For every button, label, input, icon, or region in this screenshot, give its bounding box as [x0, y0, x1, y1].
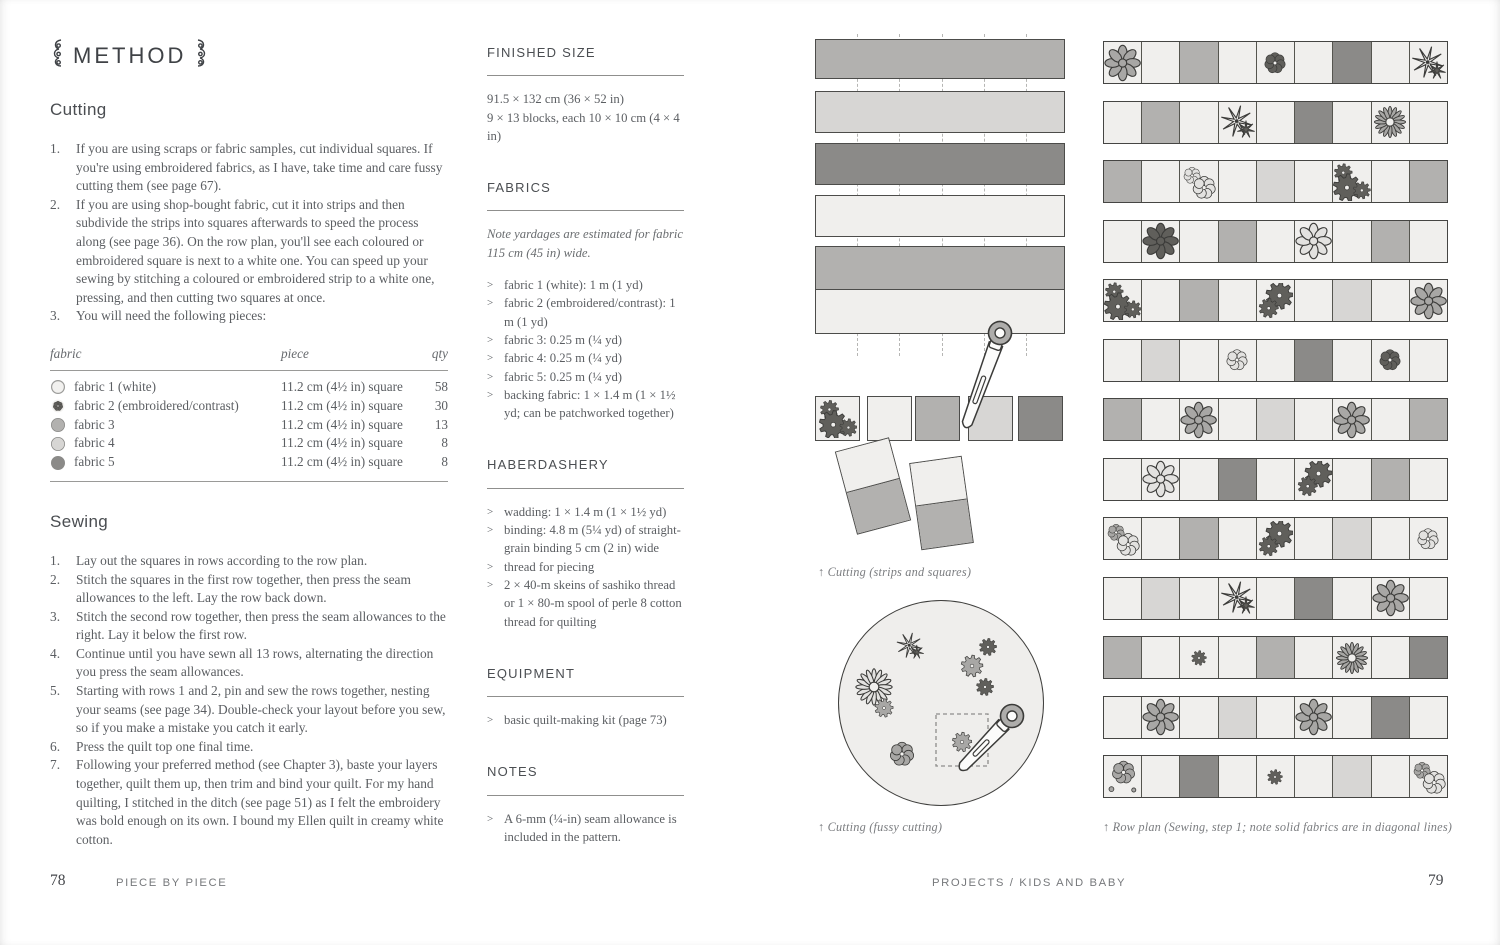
- gear-flower-icon: [1262, 764, 1288, 790]
- row-plan-cell-white: [1332, 340, 1370, 381]
- fabric-strip: [815, 39, 1065, 79]
- row-plan-row: [1103, 577, 1448, 620]
- step-text: If you are using shop-bought fabric, cut…: [76, 197, 434, 305]
- step-text: If you are using scraps or fabric sample…: [76, 141, 442, 193]
- row-plan-cell-white: [1256, 697, 1294, 738]
- row-plan-cell-solid: [1218, 459, 1256, 500]
- row-plan-cell-solid: [1141, 340, 1179, 381]
- star-flower-icon: [1410, 42, 1447, 83]
- step-item: 7.Following your preferred method (see C…: [50, 756, 450, 849]
- row-plan-cell-solid: [1294, 578, 1332, 619]
- info-section: NOTES>A 6-mm (¼-in) seam allowance is in…: [487, 763, 684, 846]
- page-title: METHOD: [50, 38, 450, 74]
- cut-square: [815, 396, 860, 441]
- cut-square: [1018, 396, 1063, 441]
- step-text: Starting with rows 1 and 2, pin and sew …: [76, 683, 445, 735]
- row-plan-row: [1103, 696, 1448, 739]
- row-plan-cell-white: [1371, 42, 1409, 83]
- bullet-item: >2 × 40-m skeins of sashiko thread or 1 …: [487, 576, 684, 631]
- info-section-title: NOTES: [487, 763, 684, 781]
- row-plan-cell-white: [1218, 161, 1256, 202]
- two-square-unit: [909, 456, 974, 551]
- row-plan-cell-embroidered: [1332, 161, 1370, 202]
- row-plan-cell-white: [1104, 459, 1141, 500]
- info-section-title: EQUIPMENT: [487, 665, 684, 683]
- book-spread: METHOD Cutting 1.If you are using scraps…: [0, 0, 1500, 945]
- quantity: 8: [416, 434, 448, 453]
- row-plan-cell-solid: [1179, 518, 1217, 559]
- fabric-table-row: fabric 511.2 cm (4½ in) square8: [50, 453, 448, 472]
- step-item: 5.Starting with rows 1 and 2, pin and se…: [50, 682, 450, 738]
- row-plan-cell-solid: [1104, 161, 1141, 202]
- bullet-icon: >: [487, 810, 493, 828]
- row-plan-cell-solid: [1256, 637, 1294, 678]
- info-line: 91.5 × 132 cm (36 × 52 in): [487, 90, 684, 108]
- daisy-flower-icon: [1333, 400, 1370, 440]
- row-plan-cell-embroidered: [1256, 280, 1294, 321]
- row-plan-cell-solid: [1104, 399, 1141, 440]
- row-plan-cell-embroidered: [1141, 697, 1179, 738]
- daisy-flower-icon: [1142, 459, 1179, 499]
- row-plan-row: [1103, 160, 1448, 203]
- row-plan-cell-solid: [1409, 637, 1447, 678]
- row-plan-cell-white: [1256, 340, 1294, 381]
- row-plan-cell-embroidered: [1218, 102, 1256, 143]
- step-item: 3.Stitch the second row together, then p…: [50, 608, 450, 645]
- row-plan-cell-embroidered: [1141, 221, 1179, 262]
- row-plan-cell-white: [1141, 637, 1179, 678]
- row-plan-cell-white: [1104, 697, 1141, 738]
- row-plan-cell-solid: [1218, 221, 1256, 262]
- fussy-overlay: [836, 598, 1048, 810]
- step-number: 6.: [50, 738, 60, 757]
- swirl-flower-icon: [1223, 346, 1251, 374]
- row-plan-cell-white: [1179, 697, 1217, 738]
- step-item: 1.If you are using scraps or fabric samp…: [50, 140, 450, 196]
- row-plan-cell-white: [1294, 756, 1332, 797]
- row-plan-caption: ↑ Row plan (Sewing, step 1; note solid f…: [1103, 820, 1452, 835]
- row-plan-cell-embroidered: [1218, 340, 1256, 381]
- row-plan-cell-white: [1179, 102, 1217, 143]
- row-plan-cell-white: [1371, 637, 1409, 678]
- row-plan-row: [1103, 279, 1448, 322]
- row-plan-cell-white: [1141, 518, 1179, 559]
- row-plan-cell-white: [1179, 578, 1217, 619]
- fabric-table-row: fabric 311.2 cm (4½ in) square13: [50, 416, 448, 435]
- row-plan-cell-white: [1371, 280, 1409, 321]
- row-plan-figure: [1103, 41, 1448, 803]
- row-plan-cell-white: [1104, 221, 1141, 262]
- row-plan-cell-solid: [1371, 697, 1409, 738]
- gears3-flower-icon: [819, 400, 857, 438]
- footer-section-title: PROJECTS / KIDS AND BABY: [932, 877, 1126, 889]
- row-plan-cell-white: [1371, 756, 1409, 797]
- sunburst-flower-icon: [1334, 640, 1370, 676]
- row-plan-cell-white: [1141, 280, 1179, 321]
- row-plan-cell-embroidered: [1104, 42, 1141, 83]
- daisy-flower-icon: [1295, 221, 1332, 261]
- gears2-flower-icon: [1296, 461, 1332, 497]
- step-number: 7.: [50, 756, 60, 775]
- swirldots-flower-icon: [1104, 757, 1141, 797]
- bullet-icon: >: [487, 503, 493, 521]
- piece-size: 11.2 cm (4½ in) square: [281, 416, 416, 435]
- row-plan-cell-white: [1294, 280, 1332, 321]
- row-plan-cell-white: [1371, 161, 1409, 202]
- row-plan-cell-solid: [1409, 161, 1447, 202]
- cutting-heading: Cutting: [50, 100, 450, 120]
- section-rule: [487, 210, 684, 211]
- row-plan-cell-white: [1218, 42, 1256, 83]
- piece-size: 11.2 cm (4½ in) square: [281, 397, 416, 416]
- row-plan-row: [1103, 220, 1448, 263]
- bullet-icon: >: [487, 576, 493, 594]
- row-plan-row: [1103, 636, 1448, 679]
- row-plan-cell-embroidered: [1256, 42, 1294, 83]
- row-plan-cell-embroidered: [1371, 578, 1409, 619]
- row-plan-cell-embroidered: [1256, 756, 1294, 797]
- row-plan-cell-embroidered: [1218, 578, 1256, 619]
- row-plan-cell-white: [1218, 518, 1256, 559]
- left-page: METHOD Cutting 1.If you are using scraps…: [50, 38, 450, 849]
- row-plan-cell-white: [1218, 280, 1256, 321]
- gears2-flower-icon: [1257, 521, 1293, 557]
- row-plan-cell-white: [1409, 102, 1447, 143]
- fabric-strip: [815, 195, 1065, 237]
- step-number: 1.: [50, 140, 60, 159]
- fabric-strip: [815, 91, 1065, 133]
- daisy-flower-icon: [1295, 697, 1332, 737]
- fabric-swatch-icon: [50, 417, 66, 433]
- row-plan-cell-solid: [1332, 518, 1370, 559]
- row-plan-row: [1103, 458, 1448, 501]
- section-note: Note yardages are estimated for fabric 1…: [487, 225, 684, 262]
- strips-figure-caption: ↑ Cutting (strips and squares): [818, 565, 971, 580]
- step-number: 3.: [50, 608, 60, 627]
- row-plan-cell-white: [1294, 161, 1332, 202]
- sewing-steps: 1.Lay out the squares in rows according …: [50, 552, 450, 850]
- bullet-item: >fabric 5: 0.25 m (¼ yd): [487, 368, 684, 386]
- row-plan-cell-embroidered: [1371, 340, 1409, 381]
- cut-square: [867, 396, 912, 441]
- row-plan-cell-white: [1294, 399, 1332, 440]
- row-plan-cell-white: [1294, 42, 1332, 83]
- step-item: 2.Stitch the squares in the first row to…: [50, 571, 450, 608]
- row-plan-cell-white: [1179, 221, 1217, 262]
- swirl-flower-icon: [1376, 346, 1404, 374]
- gears3-flower-icon: [1333, 163, 1370, 201]
- piece-size: 11.2 cm (4½ in) square: [281, 434, 416, 453]
- piece-size: 11.2 cm (4½ in) square: [281, 453, 416, 472]
- row-plan-cell-white: [1179, 340, 1217, 381]
- row-plan-cell-solid: [1179, 42, 1217, 83]
- row-plan-cell-embroidered: [1179, 637, 1217, 678]
- row-plan-cell-embroidered: [1409, 280, 1447, 321]
- row-plan-cell-embroidered: [1294, 697, 1332, 738]
- step-text: Following your preferred method (see Cha…: [76, 757, 443, 846]
- row-plan-row: [1103, 755, 1448, 798]
- row-plan-cell-solid: [1179, 280, 1217, 321]
- row-plan-cell-white: [1104, 340, 1141, 381]
- row-plan-cell-embroidered: [1332, 637, 1370, 678]
- row-plan-cell-solid: [1332, 280, 1370, 321]
- squiggle-bracket-left-icon: [50, 38, 64, 74]
- step-text: Press the quilt top one final time.: [76, 739, 253, 754]
- row-plan-cell-white: [1141, 756, 1179, 797]
- bullet-item: >binding: 4.8 m (5¼ yd) of straight-grai…: [487, 521, 684, 558]
- row-plan-cell-white: [1256, 459, 1294, 500]
- row-plan-cell-solid: [1141, 102, 1179, 143]
- step-text: Lay out the squares in rows according to…: [76, 553, 367, 568]
- bullet-icon: >: [487, 711, 493, 729]
- method-title-text: METHOD: [73, 43, 186, 69]
- row-plan-cell-white: [1256, 221, 1294, 262]
- bullet-item: >A 6-mm (¼-in) seam allowance is include…: [487, 810, 684, 847]
- bullet-icon: >: [487, 276, 493, 294]
- row-plan-cell-solid: [1256, 161, 1294, 202]
- info-column: FINISHED SIZE91.5 × 132 cm (36 × 52 in)9…: [487, 44, 684, 880]
- fabric-strip-pair: [815, 246, 1065, 334]
- row-plan-cell-solid: [1332, 42, 1370, 83]
- row-plan-cell-white: [1371, 399, 1409, 440]
- info-line: 9 × 13 blocks, each 10 × 10 cm (4 × 4 in…: [487, 109, 684, 146]
- swirl2-flower-icon: [1104, 520, 1141, 558]
- footer-book-title: PIECE BY PIECE: [116, 877, 227, 889]
- bullet-icon: >: [487, 349, 493, 367]
- star-flower-icon: [1219, 102, 1256, 143]
- table-rule: [50, 481, 448, 482]
- row-plan-cell-white: [1332, 102, 1370, 143]
- row-plan-cell-white: [1371, 518, 1409, 559]
- bullet-icon: >: [487, 386, 493, 404]
- gears2-flower-icon: [1257, 283, 1293, 319]
- row-plan-cell-white: [1141, 161, 1179, 202]
- info-section-title: HABERDASHERY: [487, 456, 684, 474]
- info-section: FABRICSNote yardages are estimated for f…: [487, 179, 684, 422]
- info-section: EQUIPMENT>basic quilt-making kit (page 7…: [487, 665, 684, 730]
- bullet-icon: >: [487, 294, 493, 312]
- step-item: 4.Continue until you have sewn all 13 ro…: [50, 645, 450, 682]
- bullet-item: >wadding: 1 × 1.4 m (1 × 1½ yd): [487, 503, 684, 521]
- row-plan-cell-white: [1332, 697, 1370, 738]
- step-number: 4.: [50, 645, 60, 664]
- sunburst-flower-icon: [1372, 104, 1408, 140]
- bullet-item: >backing fabric: 1 × 1.4 m (1 × 1½ yd; c…: [487, 386, 684, 423]
- col-header-piece: piece: [281, 346, 416, 362]
- bullet-icon: >: [487, 368, 493, 386]
- step-number: 5.: [50, 682, 60, 701]
- step-text: Continue until you have sewn all 13 rows…: [76, 646, 433, 680]
- right-page-number: 79: [1428, 872, 1444, 890]
- row-plan-cell-embroidered: [1332, 399, 1370, 440]
- row-plan-cell-solid: [1332, 756, 1370, 797]
- daisy-flower-icon: [1410, 281, 1447, 321]
- swirl-flower-icon: [1261, 49, 1289, 77]
- fabric-table: fabricpieceqtyfabric 1 (white)11.2 cm (4…: [50, 346, 448, 482]
- row-plan-cell-embroidered: [1371, 102, 1409, 143]
- fabric-name: fabric 5: [74, 453, 115, 472]
- row-plan-cell-embroidered: [1294, 459, 1332, 500]
- quantity: 30: [416, 397, 448, 416]
- row-plan-cell-white: [1218, 637, 1256, 678]
- section-rule: [487, 75, 684, 76]
- row-plan-cell-white: [1294, 637, 1332, 678]
- gear-flower-icon: [1186, 645, 1212, 671]
- fabric-name: fabric 1 (white): [74, 378, 156, 397]
- fabric-name: fabric 3: [74, 416, 115, 435]
- section-rule: [487, 795, 684, 796]
- fabric-table-row: fabric 411.2 cm (4½ in) square8: [50, 434, 448, 453]
- row-plan-cell-white: [1141, 399, 1179, 440]
- row-plan-cell-white: [1218, 756, 1256, 797]
- quantity: 8: [416, 453, 448, 472]
- cut-square: [915, 396, 960, 441]
- cut-square: [968, 396, 1013, 441]
- row-plan-cell-embroidered: [1104, 756, 1141, 797]
- fabric-swatch-icon: [50, 436, 66, 452]
- bullet-item: >fabric 2 (embroidered/contrast): 1 m (1…: [487, 294, 684, 331]
- fabric-swatch-icon: [50, 455, 66, 471]
- row-plan-row: [1103, 398, 1448, 441]
- fabric-swatch-icon: [50, 379, 66, 395]
- bullet-item: >basic quilt-making kit (page 73): [487, 711, 684, 729]
- row-plan-cell-white: [1104, 578, 1141, 619]
- sewing-heading: Sewing: [50, 512, 450, 532]
- row-plan-cell-solid: [1371, 459, 1409, 500]
- row-plan-cell-white: [1104, 102, 1141, 143]
- row-plan-cell-solid: [1179, 756, 1217, 797]
- step-text: Stitch the second row together, then pre…: [76, 609, 446, 643]
- bullet-item: >fabric 4: 0.25 m (¼ yd): [487, 349, 684, 367]
- step-text: You will need the following pieces:: [76, 308, 266, 323]
- row-plan-cell-embroidered: [1104, 280, 1141, 321]
- row-plan-row: [1103, 101, 1448, 144]
- col-header-fabric: fabric: [50, 346, 281, 362]
- section-rule: [487, 488, 684, 489]
- step-text: Stitch the squares in the first row toge…: [76, 572, 411, 606]
- bullet-item: >fabric 1 (white): 1 m (1 yd): [487, 276, 684, 294]
- swirl2-flower-icon: [1180, 163, 1217, 201]
- step-item: 3.You will need the following pieces:: [50, 307, 450, 326]
- bullet-icon: >: [487, 331, 493, 349]
- row-plan-cell-white: [1332, 221, 1370, 262]
- left-page-number: 78: [50, 872, 66, 890]
- row-plan-cell-embroidered: [1179, 161, 1217, 202]
- row-plan-cell-white: [1256, 102, 1294, 143]
- row-plan-cell-white: [1179, 459, 1217, 500]
- row-plan-cell-white: [1332, 578, 1370, 619]
- row-plan-cell-white: [1409, 578, 1447, 619]
- row-plan-cell-embroidered: [1256, 518, 1294, 559]
- fabric-table-row: fabric 2 (embroidered/contrast)11.2 cm (…: [50, 397, 448, 416]
- quantity: 58: [416, 378, 448, 397]
- row-plan-cell-solid: [1409, 399, 1447, 440]
- fabric-table-row: fabric 1 (white)11.2 cm (4½ in) square58: [50, 378, 448, 397]
- row-plan-cell-solid: [1294, 102, 1332, 143]
- two-square-unit: [835, 437, 911, 535]
- row-plan-row: [1103, 339, 1448, 382]
- row-plan-cell-white: [1409, 221, 1447, 262]
- section-rule: [487, 696, 684, 697]
- daisy-flower-icon: [1142, 697, 1179, 737]
- gears3-flower-icon: [1104, 282, 1141, 320]
- fussy-cutting-figure: [836, 598, 1048, 810]
- row-plan-cell-solid: [1294, 340, 1332, 381]
- step-item: 1.Lay out the squares in rows according …: [50, 552, 450, 571]
- row-plan-cell-embroidered: [1179, 399, 1217, 440]
- step-number: 2.: [50, 196, 60, 215]
- fabric-swatch-icon: [50, 398, 66, 414]
- step-number: 1.: [50, 552, 60, 571]
- daisy-flower-icon: [1372, 578, 1409, 618]
- row-plan-cell-embroidered: [1104, 518, 1141, 559]
- star-flower-icon: [1219, 578, 1256, 619]
- swirl2-flower-icon: [1410, 758, 1447, 796]
- fussy-figure-caption: ↑ Cutting (fussy cutting): [818, 820, 942, 835]
- bullet-item: >thread for piecing: [487, 558, 684, 576]
- row-plan-cell-white: [1141, 42, 1179, 83]
- quantity: 13: [416, 416, 448, 435]
- info-section: FINISHED SIZE91.5 × 132 cm (36 × 52 in)9…: [487, 44, 684, 145]
- row-plan-cell-solid: [1141, 578, 1179, 619]
- daisy-flower-icon: [1180, 400, 1217, 440]
- row-plan-cell-solid: [1104, 637, 1141, 678]
- bullet-item: >fabric 3: 0.25 m (¼ yd): [487, 331, 684, 349]
- col-header-qty: qty: [416, 346, 448, 362]
- info-section-title: FINISHED SIZE: [487, 44, 684, 62]
- step-item: 2.If you are using shop-bought fabric, c…: [50, 196, 450, 308]
- fabric-name: fabric 4: [74, 434, 115, 453]
- row-plan-row: [1103, 517, 1448, 560]
- info-section: HABERDASHERY>wadding: 1 × 1.4 m (1 × 1½ …: [487, 456, 684, 630]
- row-plan-cell-embroidered: [1409, 42, 1447, 83]
- row-plan-cell-solid: [1371, 221, 1409, 262]
- row-plan-cell-white: [1332, 459, 1370, 500]
- step-number: 3.: [50, 307, 60, 326]
- cutting-steps: 1.If you are using scraps or fabric samp…: [50, 140, 450, 326]
- row-plan-cell-white: [1409, 340, 1447, 381]
- swirl-flower-icon: [1414, 525, 1442, 553]
- daisy-flower-icon: [1142, 221, 1179, 261]
- row-plan-cell-white: [1409, 697, 1447, 738]
- step-item: 6.Press the quilt top one final time.: [50, 738, 450, 757]
- squiggle-bracket-right-icon: [195, 38, 209, 74]
- row-plan-cell-white: [1294, 518, 1332, 559]
- row-plan-cell-embroidered: [1409, 756, 1447, 797]
- bullet-icon: >: [487, 558, 493, 576]
- bullet-icon: >: [487, 521, 493, 539]
- piece-size: 11.2 cm (4½ in) square: [281, 378, 416, 397]
- fabric-table-header: fabricpieceqty: [50, 346, 448, 370]
- daisy-flower-icon: [1104, 43, 1141, 83]
- row-plan-cell-embroidered: [1409, 518, 1447, 559]
- row-plan-row: [1103, 41, 1448, 84]
- fabric-name: fabric 2 (embroidered/contrast): [74, 397, 239, 416]
- row-plan-cell-embroidered: [1141, 459, 1179, 500]
- row-plan-cell-embroidered: [1294, 221, 1332, 262]
- row-plan-cell-white: [1218, 399, 1256, 440]
- row-plan-cell-white: [1409, 459, 1447, 500]
- row-plan-cell-white: [1256, 578, 1294, 619]
- cutting-strips-figure: [815, 34, 1065, 600]
- row-plan-cell-solid: [1256, 399, 1294, 440]
- row-plan-cell-solid: [1218, 697, 1256, 738]
- info-section-title: FABRICS: [487, 179, 684, 197]
- fabric-strip: [815, 143, 1065, 185]
- step-number: 2.: [50, 571, 60, 590]
